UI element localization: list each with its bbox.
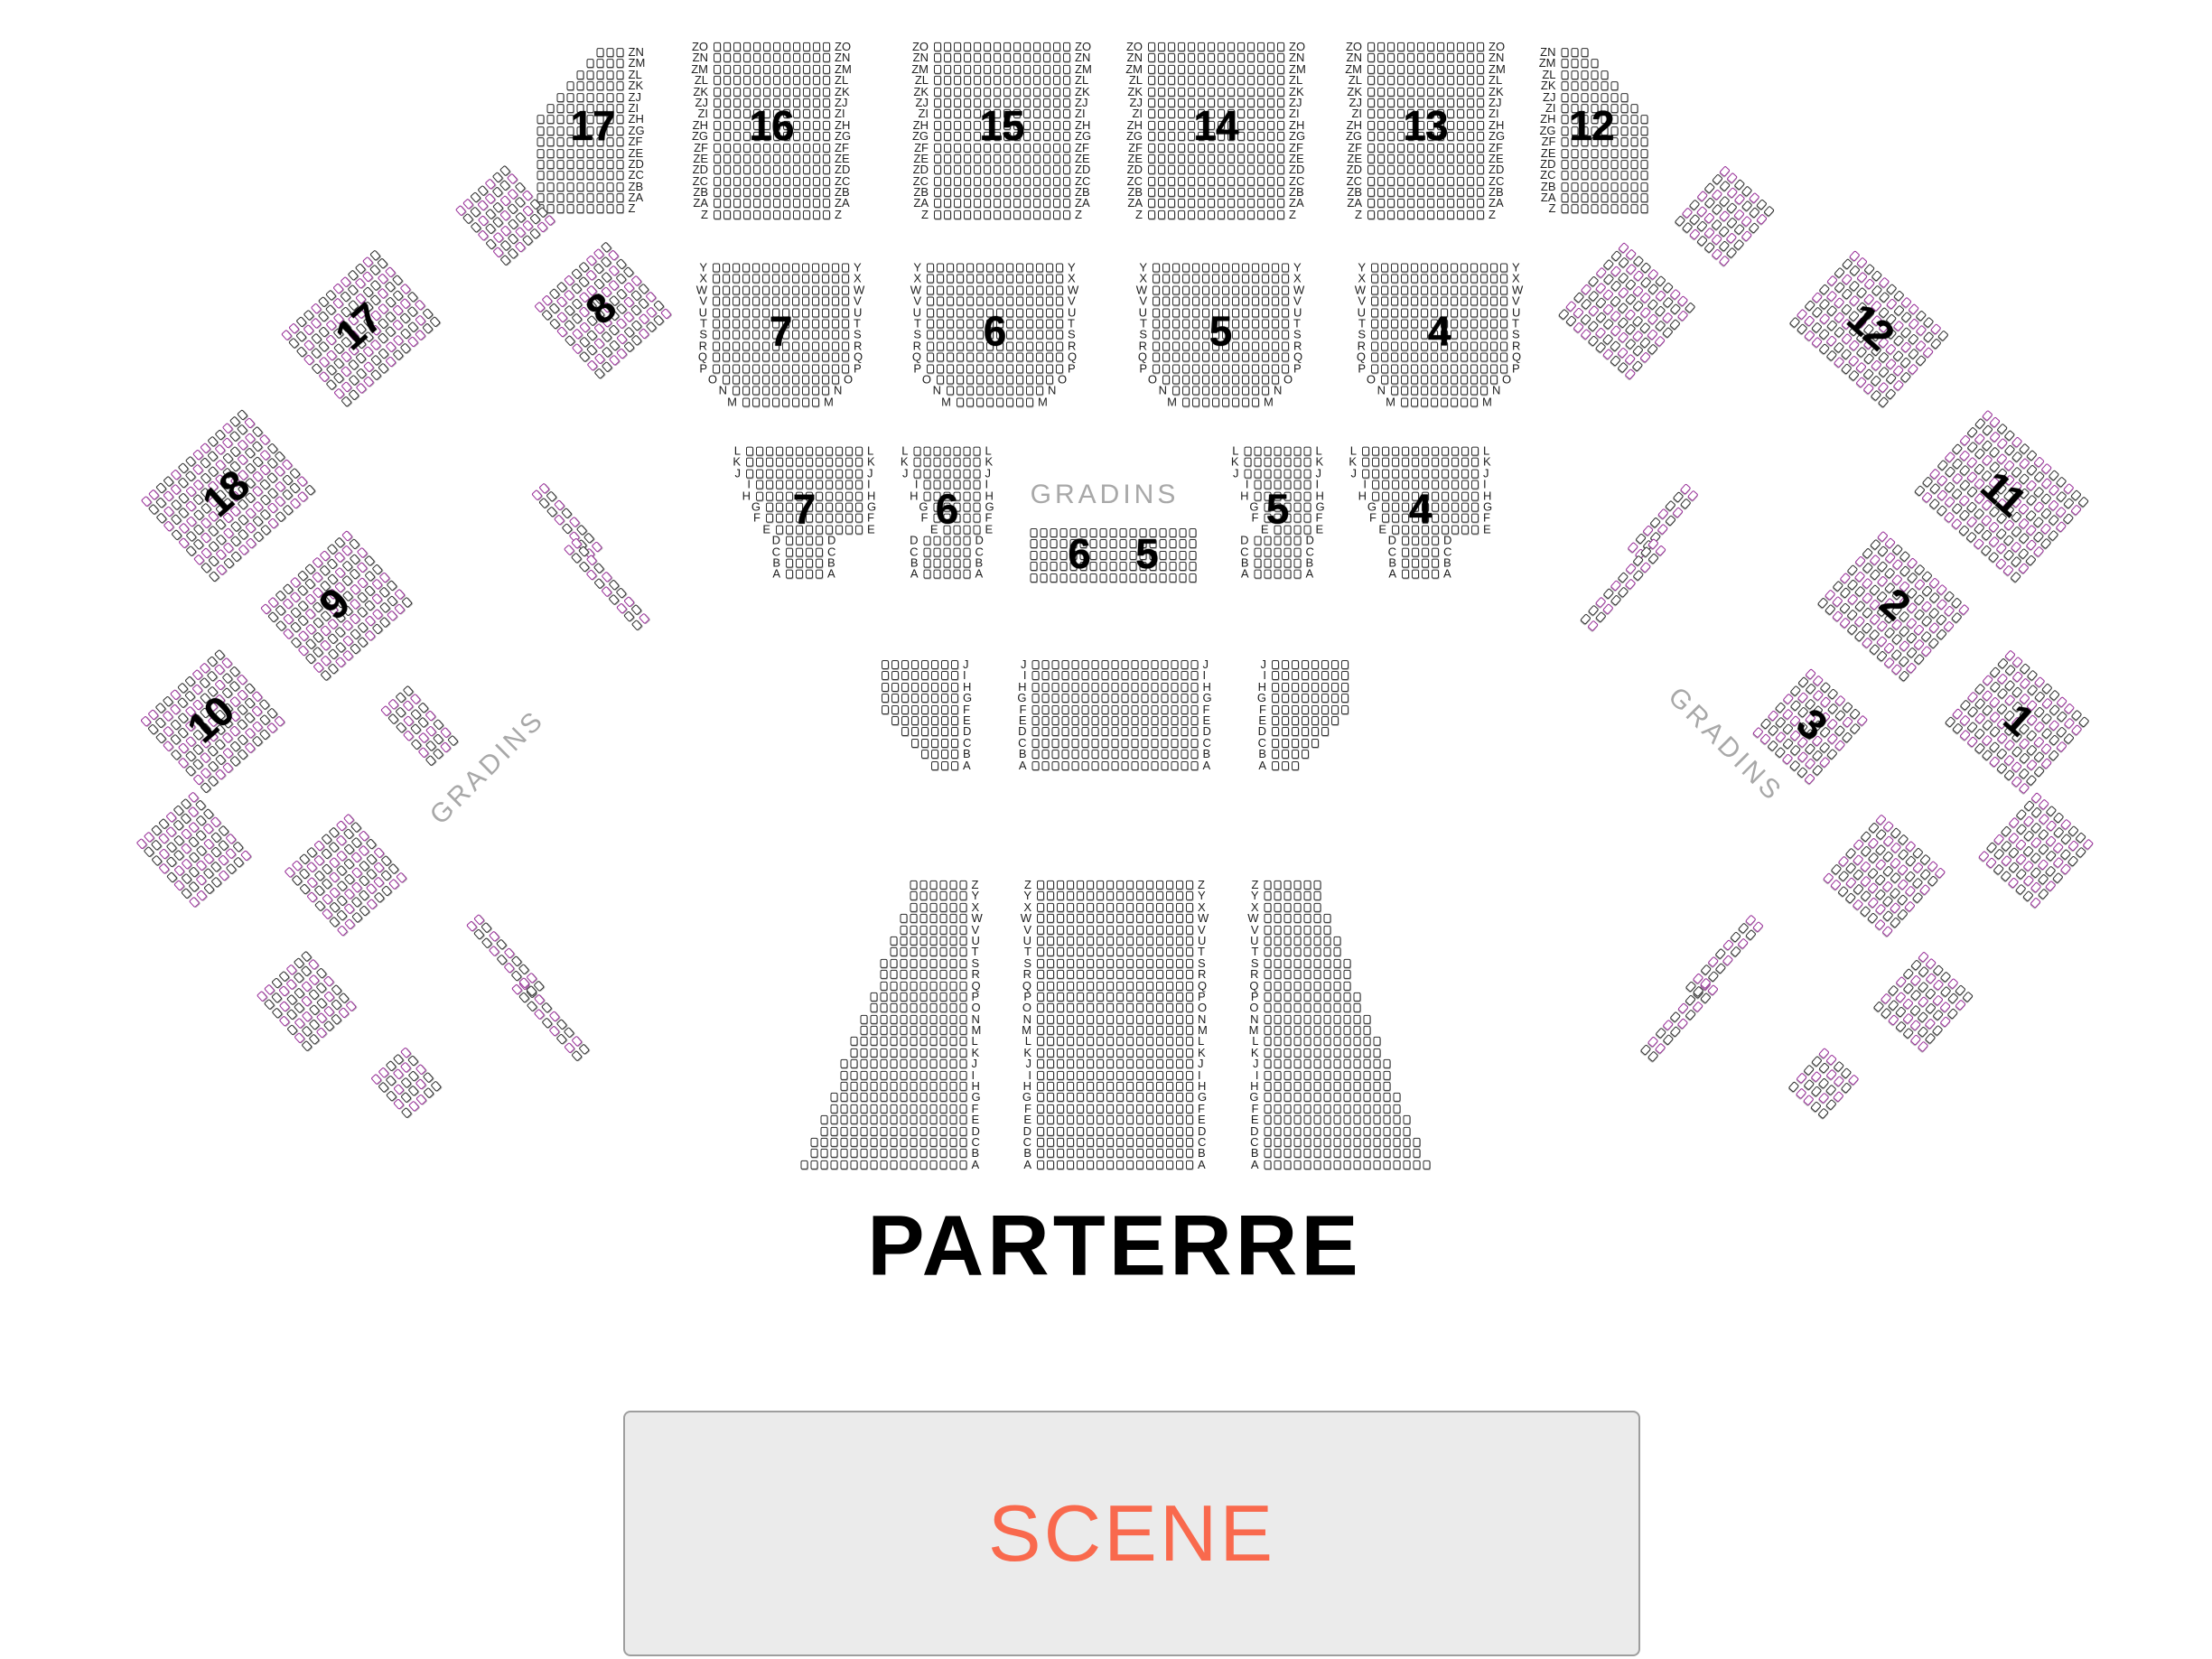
seat[interactable] xyxy=(974,53,981,62)
seat[interactable] xyxy=(1116,1026,1124,1035)
seat[interactable] xyxy=(1037,937,1044,946)
seat[interactable] xyxy=(1146,1049,1153,1058)
seat[interactable] xyxy=(773,199,780,208)
seat[interactable] xyxy=(1136,993,1143,1002)
seat[interactable] xyxy=(870,1037,877,1046)
seat[interactable] xyxy=(1129,528,1136,537)
seat[interactable] xyxy=(1036,364,1043,373)
seat[interactable] xyxy=(762,353,770,362)
seat[interactable] xyxy=(342,650,354,662)
seat[interactable] xyxy=(1417,143,1424,152)
seat[interactable] xyxy=(1402,536,1409,545)
seat[interactable] xyxy=(537,171,544,180)
seat[interactable] xyxy=(1053,199,1060,208)
seat[interactable] xyxy=(1267,132,1274,141)
seat[interactable] xyxy=(537,149,544,158)
seat[interactable] xyxy=(923,536,930,545)
seat[interactable] xyxy=(919,903,927,912)
seat[interactable] xyxy=(1176,937,1183,946)
seat[interactable] xyxy=(959,903,966,912)
seat[interactable] xyxy=(1232,397,1239,406)
seat[interactable] xyxy=(919,1127,927,1136)
seat[interactable] xyxy=(1571,70,1578,79)
seat[interactable] xyxy=(1227,65,1235,74)
seat[interactable] xyxy=(1057,1115,1064,1124)
seat[interactable] xyxy=(763,109,770,118)
seat[interactable] xyxy=(1401,297,1408,306)
seat[interactable] xyxy=(1274,881,1281,890)
seat[interactable] xyxy=(1161,671,1168,680)
seat[interactable] xyxy=(1227,177,1235,186)
seat[interactable] xyxy=(1363,1049,1370,1058)
seat[interactable] xyxy=(1162,275,1170,284)
seat[interactable] xyxy=(953,547,960,556)
seat[interactable] xyxy=(1480,275,1488,284)
seat[interactable] xyxy=(1089,573,1097,583)
seat[interactable] xyxy=(1051,750,1059,759)
seat[interactable] xyxy=(1382,503,1389,512)
seat[interactable] xyxy=(1046,297,1053,306)
seat[interactable] xyxy=(994,109,1001,118)
seat[interactable] xyxy=(1176,1160,1183,1170)
seat[interactable] xyxy=(1087,1003,1094,1012)
seat[interactable] xyxy=(927,285,934,294)
seat[interactable] xyxy=(1383,1082,1390,1091)
seat[interactable] xyxy=(1257,188,1265,197)
seat[interactable] xyxy=(947,285,954,294)
seat[interactable] xyxy=(1401,387,1408,396)
seat[interactable] xyxy=(1087,925,1094,934)
seat[interactable] xyxy=(1087,1037,1094,1046)
seat[interactable] xyxy=(1303,491,1311,500)
seat[interactable] xyxy=(1333,1104,1340,1114)
seat[interactable] xyxy=(237,750,248,761)
seat[interactable] xyxy=(1571,126,1578,135)
seat[interactable] xyxy=(1283,1127,1291,1136)
seat[interactable] xyxy=(1136,881,1143,890)
seat[interactable] xyxy=(890,1071,897,1080)
seat[interactable] xyxy=(1571,48,1578,57)
seat[interactable] xyxy=(913,458,920,467)
seat[interactable] xyxy=(1431,364,1438,373)
seat[interactable] xyxy=(1756,213,1768,225)
seat[interactable] xyxy=(954,87,961,96)
seat[interactable] xyxy=(966,364,974,373)
seat[interactable] xyxy=(733,177,741,186)
seat[interactable] xyxy=(1274,1127,1281,1136)
seat[interactable] xyxy=(880,1059,887,1068)
seat[interactable] xyxy=(929,1049,937,1058)
seat[interactable] xyxy=(1293,1003,1301,1012)
seat[interactable] xyxy=(537,222,548,234)
seat[interactable] xyxy=(882,671,889,680)
seat[interactable] xyxy=(1186,1093,1193,1102)
seat[interactable] xyxy=(855,469,863,478)
seat[interactable] xyxy=(1601,93,1608,102)
seat[interactable] xyxy=(1581,171,1588,180)
seat[interactable] xyxy=(407,336,419,348)
seat[interactable] xyxy=(855,491,863,500)
seat[interactable] xyxy=(994,98,1001,107)
seat[interactable] xyxy=(1247,210,1255,219)
seat[interactable] xyxy=(1208,199,1215,208)
seat[interactable] xyxy=(1303,1138,1311,1147)
seat[interactable] xyxy=(1471,480,1479,489)
seat[interactable] xyxy=(1283,1059,1291,1068)
seat[interactable] xyxy=(1121,683,1128,692)
seat[interactable] xyxy=(1341,694,1349,703)
seat[interactable] xyxy=(1442,447,1449,456)
seat[interactable] xyxy=(1166,1015,1173,1024)
seat[interactable] xyxy=(1403,1149,1410,1158)
seat[interactable] xyxy=(1303,1049,1311,1058)
seat[interactable] xyxy=(753,132,761,141)
seat[interactable] xyxy=(1274,937,1281,946)
seat[interactable] xyxy=(756,447,763,456)
seat[interactable] xyxy=(996,387,1003,396)
seat[interactable] xyxy=(860,1059,867,1068)
seat[interactable] xyxy=(1169,539,1176,548)
seat[interactable] xyxy=(338,1008,350,1020)
seat[interactable] xyxy=(812,397,819,406)
seat[interactable] xyxy=(1630,149,1638,158)
seat[interactable] xyxy=(1353,1037,1360,1046)
seat[interactable] xyxy=(1403,1138,1410,1147)
seat[interactable] xyxy=(1247,121,1255,130)
seat[interactable] xyxy=(1057,993,1064,1002)
seat[interactable] xyxy=(1016,364,1023,373)
seat[interactable] xyxy=(949,1115,957,1124)
seat[interactable] xyxy=(1373,1082,1380,1091)
seat[interactable] xyxy=(823,65,830,74)
seat[interactable] xyxy=(850,1082,857,1091)
seat[interactable] xyxy=(949,914,957,923)
seat[interactable] xyxy=(1252,364,1259,373)
seat[interactable] xyxy=(803,210,810,219)
seat[interactable] xyxy=(1046,308,1053,317)
seat[interactable] xyxy=(1189,539,1196,548)
seat[interactable] xyxy=(1471,469,1479,478)
seat[interactable] xyxy=(753,210,761,219)
seat[interactable] xyxy=(1013,143,1021,152)
seat[interactable] xyxy=(773,177,780,186)
seat[interactable] xyxy=(1067,947,1074,956)
seat[interactable] xyxy=(800,1160,807,1170)
seat[interactable] xyxy=(1161,705,1168,714)
seat[interactable] xyxy=(1412,491,1419,500)
seat[interactable] xyxy=(1031,750,1039,759)
seat[interactable] xyxy=(984,165,991,174)
seat[interactable] xyxy=(1313,1015,1321,1024)
seat[interactable] xyxy=(1081,739,1088,748)
seat[interactable] xyxy=(1037,970,1044,979)
seat[interactable] xyxy=(1382,480,1389,489)
seat[interactable] xyxy=(1121,671,1128,680)
seat[interactable] xyxy=(822,319,829,328)
seat[interactable] xyxy=(1373,1104,1380,1114)
seat[interactable] xyxy=(941,671,948,680)
seat[interactable] xyxy=(796,447,803,456)
seat[interactable] xyxy=(1283,1037,1291,1046)
seat[interactable] xyxy=(1417,53,1424,62)
seat[interactable] xyxy=(606,149,613,158)
seat[interactable] xyxy=(1371,319,1378,328)
seat[interactable] xyxy=(1033,121,1041,130)
seat[interactable] xyxy=(1047,903,1054,912)
seat[interactable] xyxy=(1274,1026,1281,1035)
seat[interactable] xyxy=(1362,458,1369,467)
seat[interactable] xyxy=(974,121,981,130)
seat[interactable] xyxy=(963,559,970,568)
seat[interactable] xyxy=(954,177,961,186)
seat[interactable] xyxy=(994,42,1001,51)
seat[interactable] xyxy=(630,620,642,631)
seat[interactable] xyxy=(1212,263,1219,272)
seat[interactable] xyxy=(1188,143,1195,152)
seat[interactable] xyxy=(1121,694,1128,703)
seat[interactable] xyxy=(1267,188,1274,197)
seat[interactable] xyxy=(1237,87,1245,96)
seat[interactable] xyxy=(1381,297,1388,306)
seat[interactable] xyxy=(1202,319,1209,328)
seat[interactable] xyxy=(1071,716,1078,725)
seat[interactable] xyxy=(1116,1059,1124,1068)
seat[interactable] xyxy=(1158,109,1165,118)
seat[interactable] xyxy=(1172,319,1180,328)
seat[interactable] xyxy=(835,525,843,534)
seat[interactable] xyxy=(1116,891,1124,900)
seat[interactable] xyxy=(1441,331,1448,340)
seat[interactable] xyxy=(1148,177,1155,186)
seat[interactable] xyxy=(1047,1003,1054,1012)
seat[interactable] xyxy=(1461,275,1468,284)
seat[interactable] xyxy=(1467,188,1474,197)
seat[interactable] xyxy=(1166,903,1173,912)
seat[interactable] xyxy=(1264,514,1271,523)
seat[interactable] xyxy=(723,210,731,219)
seat[interactable] xyxy=(823,98,830,107)
seat[interactable] xyxy=(880,1003,887,1012)
seat[interactable] xyxy=(773,143,780,152)
seat[interactable] xyxy=(806,458,813,467)
seat[interactable] xyxy=(939,1115,947,1124)
seat[interactable] xyxy=(1166,1104,1173,1114)
seat[interactable] xyxy=(1148,188,1155,197)
seat[interactable] xyxy=(1166,1082,1173,1091)
seat[interactable] xyxy=(1277,154,1284,163)
seat[interactable] xyxy=(753,87,761,96)
seat[interactable] xyxy=(1411,297,1418,306)
seat[interactable] xyxy=(1282,275,1289,284)
seat[interactable] xyxy=(566,171,574,180)
seat[interactable] xyxy=(1274,914,1281,923)
seat[interactable] xyxy=(1303,1127,1311,1136)
seat[interactable] xyxy=(1277,199,1284,208)
seat[interactable] xyxy=(984,65,991,74)
seat[interactable] xyxy=(1148,42,1155,51)
seat[interactable] xyxy=(939,1049,947,1058)
seat[interactable] xyxy=(793,121,800,130)
seat[interactable] xyxy=(959,1115,966,1124)
seat[interactable] xyxy=(966,397,974,406)
seat[interactable] xyxy=(1293,1071,1301,1080)
seat[interactable] xyxy=(1121,739,1128,748)
seat[interactable] xyxy=(1212,364,1219,373)
seat[interactable] xyxy=(1393,1138,1400,1147)
seat[interactable] xyxy=(919,970,927,979)
seat[interactable] xyxy=(1353,993,1360,1002)
seat[interactable] xyxy=(964,87,971,96)
seat[interactable] xyxy=(941,683,948,692)
seat[interactable] xyxy=(1116,1003,1124,1012)
seat[interactable] xyxy=(1303,447,1311,456)
seat[interactable] xyxy=(937,263,944,272)
seat[interactable] xyxy=(556,182,564,191)
seat[interactable] xyxy=(1047,881,1054,890)
seat[interactable] xyxy=(1441,285,1448,294)
seat[interactable] xyxy=(1208,154,1215,163)
seat[interactable] xyxy=(1467,98,1474,107)
seat[interactable] xyxy=(1610,160,1618,169)
seat[interactable] xyxy=(976,387,984,396)
seat[interactable] xyxy=(826,480,833,489)
seat[interactable] xyxy=(1461,331,1468,340)
seat[interactable] xyxy=(1077,981,1084,990)
seat[interactable] xyxy=(763,121,770,130)
seat[interactable] xyxy=(996,331,1003,340)
seat[interactable] xyxy=(1763,205,1775,217)
seat[interactable] xyxy=(939,925,947,934)
seat[interactable] xyxy=(1031,716,1039,725)
seat[interactable] xyxy=(1097,1003,1104,1012)
seat[interactable] xyxy=(986,341,994,350)
seat[interactable] xyxy=(1470,275,1478,284)
seat[interactable] xyxy=(1057,925,1064,934)
seat[interactable] xyxy=(890,981,897,990)
seat[interactable] xyxy=(802,319,809,328)
seat[interactable] xyxy=(974,188,981,197)
seat[interactable] xyxy=(786,514,793,523)
seat[interactable] xyxy=(974,210,981,219)
seat[interactable] xyxy=(733,53,741,62)
seat[interactable] xyxy=(1051,705,1059,714)
seat[interactable] xyxy=(1188,210,1195,219)
seat[interactable] xyxy=(949,970,957,979)
seat[interactable] xyxy=(1561,70,1568,79)
seat[interactable] xyxy=(900,1059,907,1068)
seat[interactable] xyxy=(1136,947,1143,956)
seat[interactable] xyxy=(1188,121,1195,130)
seat[interactable] xyxy=(947,331,954,340)
seat[interactable] xyxy=(1467,154,1474,163)
seat[interactable] xyxy=(1264,1093,1271,1102)
seat[interactable] xyxy=(733,341,740,350)
seat[interactable] xyxy=(1274,1104,1281,1114)
seat[interactable] xyxy=(1077,1149,1084,1158)
seat[interactable] xyxy=(713,331,720,340)
seat[interactable] xyxy=(939,1127,947,1136)
seat[interactable] xyxy=(1146,1071,1153,1080)
seat[interactable] xyxy=(842,263,849,272)
seat[interactable] xyxy=(1171,761,1178,770)
seat[interactable] xyxy=(802,375,809,384)
seat[interactable] xyxy=(1116,1138,1124,1147)
seat[interactable] xyxy=(1171,671,1178,680)
seat[interactable] xyxy=(1282,353,1289,362)
seat[interactable] xyxy=(1023,98,1031,107)
seat[interactable] xyxy=(813,109,820,118)
seat[interactable] xyxy=(934,143,941,152)
seat[interactable] xyxy=(1412,514,1419,523)
seat[interactable] xyxy=(1148,165,1155,174)
seat[interactable] xyxy=(616,59,623,68)
seat[interactable] xyxy=(1292,739,1299,748)
seat[interactable] xyxy=(1081,694,1088,703)
seat[interactable] xyxy=(1046,353,1053,362)
seat[interactable] xyxy=(1136,1160,1143,1170)
seat[interactable] xyxy=(1166,947,1173,956)
seat[interactable] xyxy=(994,132,1001,141)
seat[interactable] xyxy=(1063,210,1070,219)
seat[interactable] xyxy=(1432,525,1439,534)
seat[interactable] xyxy=(1283,914,1291,923)
seat[interactable] xyxy=(1176,1082,1183,1091)
seat[interactable] xyxy=(1041,727,1049,736)
seat[interactable] xyxy=(1099,551,1106,560)
seat[interactable] xyxy=(939,1037,947,1046)
seat[interactable] xyxy=(1313,959,1321,968)
seat[interactable] xyxy=(1146,1003,1153,1012)
seat[interactable] xyxy=(1432,469,1439,478)
seat[interactable] xyxy=(566,193,574,202)
seat[interactable] xyxy=(947,319,954,328)
seat[interactable] xyxy=(1202,285,1209,294)
seat[interactable] xyxy=(921,705,929,714)
seat[interactable] xyxy=(947,263,954,272)
seat[interactable] xyxy=(1292,705,1299,714)
seat[interactable] xyxy=(783,87,790,96)
seat[interactable] xyxy=(1057,914,1064,923)
seat[interactable] xyxy=(900,947,907,956)
seat[interactable] xyxy=(1323,1037,1330,1046)
seat[interactable] xyxy=(1391,387,1398,396)
seat[interactable] xyxy=(963,480,970,489)
seat[interactable] xyxy=(753,143,761,152)
seat[interactable] xyxy=(1382,458,1389,467)
seat[interactable] xyxy=(1377,76,1385,85)
seat[interactable] xyxy=(1601,126,1608,135)
seat[interactable] xyxy=(832,341,839,350)
seat[interactable] xyxy=(1630,126,1638,135)
seat[interactable] xyxy=(1101,750,1108,759)
seat[interactable] xyxy=(1047,981,1054,990)
seat[interactable] xyxy=(1036,308,1043,317)
seat[interactable] xyxy=(832,319,839,328)
seat[interactable] xyxy=(1262,275,1269,284)
seat[interactable] xyxy=(822,331,829,340)
seat[interactable] xyxy=(1036,387,1043,396)
seat[interactable] xyxy=(1218,42,1225,51)
seat[interactable] xyxy=(743,109,751,118)
seat[interactable] xyxy=(556,93,564,102)
seat[interactable] xyxy=(1372,458,1379,467)
seat[interactable] xyxy=(776,503,783,512)
seat[interactable] xyxy=(714,109,721,118)
seat[interactable] xyxy=(1470,387,1478,396)
seat[interactable] xyxy=(845,503,853,512)
seat[interactable] xyxy=(1437,132,1444,141)
seat[interactable] xyxy=(1387,65,1395,74)
